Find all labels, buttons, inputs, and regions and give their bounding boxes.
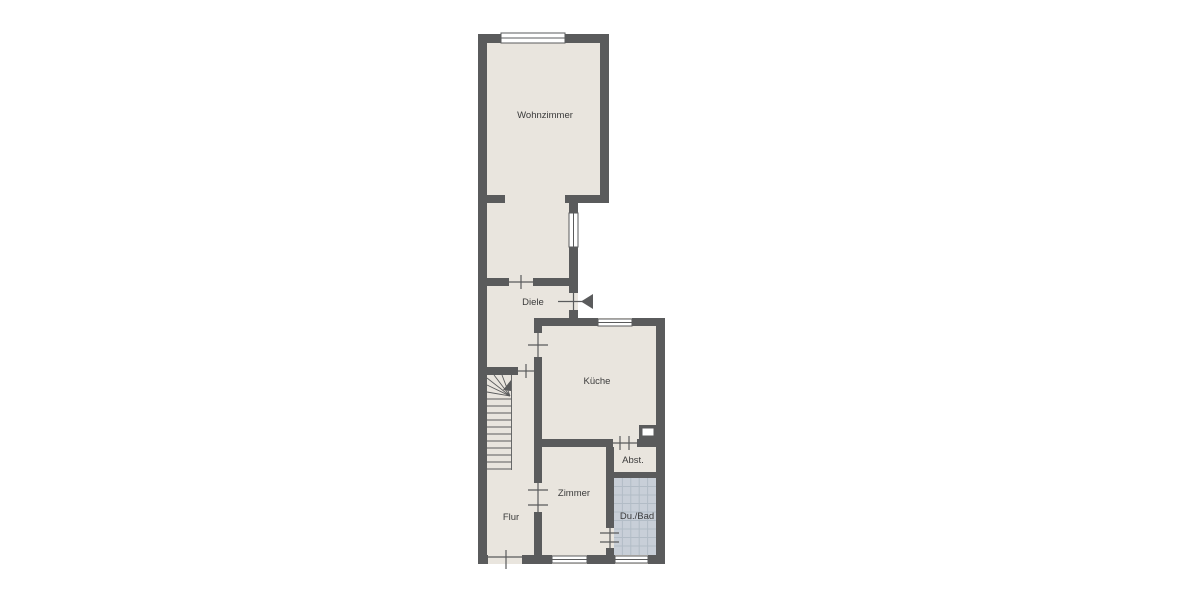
room-label-dusche-bad: Du./Bad: [620, 511, 654, 522]
window-bad-bottom: [615, 556, 648, 563]
room-label-zimmer: Zimmer: [558, 488, 590, 499]
window-middle-right: [569, 213, 578, 247]
window-kueche-top: [598, 319, 632, 326]
window-wohnzimmer-top: [501, 33, 565, 43]
window-zimmer-bottom: [552, 556, 587, 563]
room-label-wohnzimmer: Wohnzimmer: [517, 110, 573, 121]
floor-plan-canvas: Wohnzimmer Diele Küche Abst. Zimmer Flur…: [0, 0, 1200, 600]
room-label-kueche: Küche: [584, 376, 611, 387]
room-label-abstellraum: Abst.: [622, 455, 644, 466]
entrance-arrow-icon: [581, 294, 593, 309]
floor-plan: Wohnzimmer Diele Küche Abst. Zimmer Flur…: [0, 0, 1200, 600]
room-label-flur: Flur: [503, 512, 519, 523]
room-label-diele: Diele: [522, 297, 544, 308]
